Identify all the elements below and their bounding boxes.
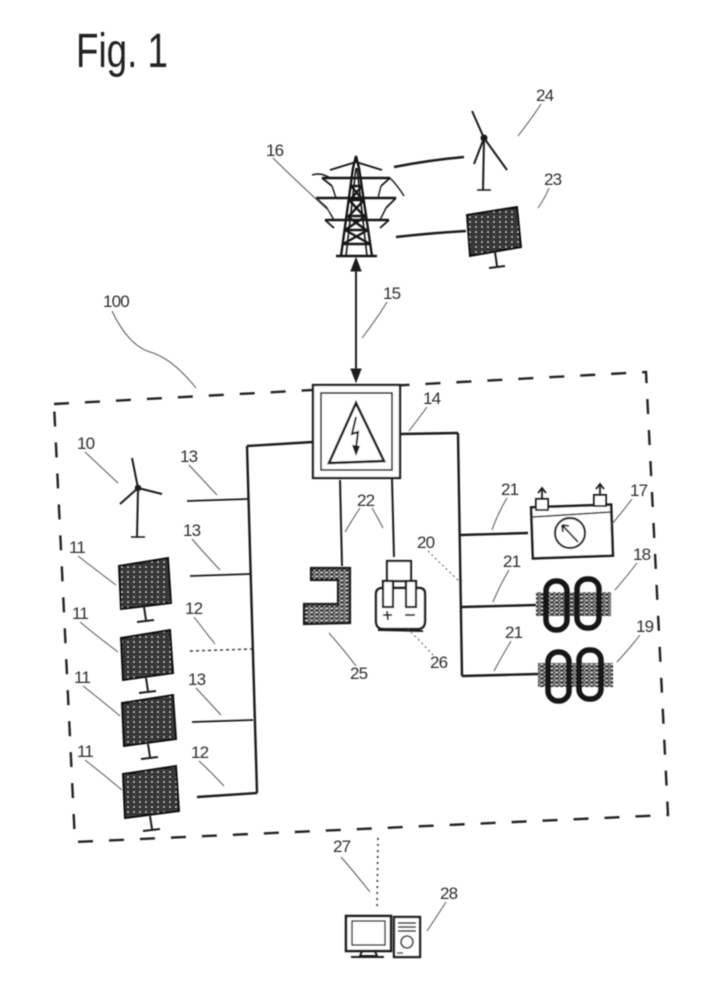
svg-text:17: 17 <box>630 481 648 500</box>
svg-text:20: 20 <box>417 533 435 552</box>
svg-text:11: 11 <box>74 668 90 687</box>
svg-text:26: 26 <box>430 653 448 672</box>
svg-text:13: 13 <box>180 447 198 466</box>
svg-text:10: 10 <box>77 434 95 453</box>
svg-text:16: 16 <box>266 141 284 160</box>
svg-text:28: 28 <box>440 884 458 903</box>
svg-text:Fig. 1: Fig. 1 <box>76 25 168 78</box>
svg-text:27: 27 <box>333 837 351 856</box>
svg-text:18: 18 <box>633 545 651 564</box>
svg-text:21: 21 <box>501 480 519 499</box>
svg-text:25: 25 <box>350 664 368 683</box>
svg-text:11: 11 <box>77 742 93 761</box>
svg-text:22: 22 <box>357 491 375 510</box>
svg-text:21: 21 <box>505 623 523 642</box>
svg-text:19: 19 <box>636 617 654 636</box>
svg-text:15: 15 <box>383 284 401 303</box>
svg-text:11: 11 <box>72 604 88 623</box>
svg-text:100: 100 <box>103 292 129 311</box>
svg-text:12: 12 <box>185 599 203 618</box>
svg-text:21: 21 <box>503 552 521 571</box>
svg-text:24: 24 <box>536 86 554 105</box>
svg-text:11: 11 <box>69 538 85 557</box>
svg-text:13: 13 <box>188 670 206 689</box>
svg-text:12: 12 <box>191 743 209 762</box>
svg-text:13: 13 <box>183 521 201 540</box>
svg-text:14: 14 <box>423 389 441 408</box>
svg-text:23: 23 <box>544 170 562 189</box>
